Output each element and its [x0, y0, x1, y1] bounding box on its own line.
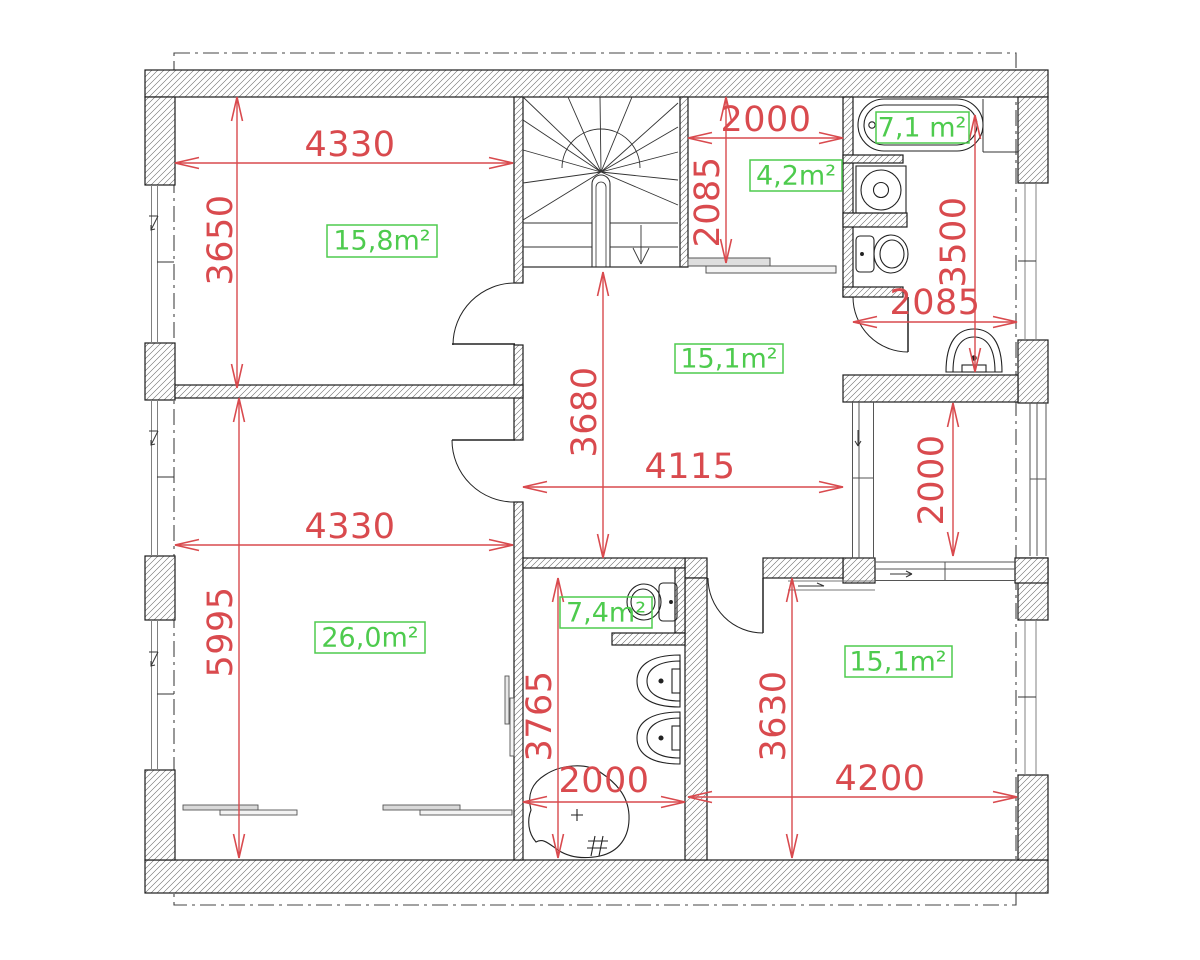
- floor-plan-canvas: 4330 3650 2000 2085 3500 2085 3680 4115 …: [0, 0, 1200, 960]
- interior-wall: [685, 558, 707, 578]
- interior-wall: [843, 97, 853, 297]
- area-label-closet: 4,2m²: [750, 160, 842, 192]
- dim-width-living: 4330: [304, 507, 395, 547]
- window: [149, 620, 174, 770]
- exterior-wall-left-pier: [145, 343, 175, 400]
- area-value: 15,8m²: [333, 226, 430, 257]
- dim-height-bedroom-top-left: 3650: [201, 194, 241, 285]
- floor-plan-drawing: 4330 3650 2000 2085 3500 2085 3680 4115 …: [0, 0, 1200, 960]
- bathroom-wall: [523, 558, 685, 568]
- balcony-corner-wall: [1015, 558, 1048, 583]
- dim-height-closet: 2085: [688, 156, 728, 247]
- exterior-wall-left-pier: [145, 556, 175, 620]
- stair-direction-arrow: [633, 225, 649, 264]
- exterior-wall-top: [145, 70, 1048, 97]
- interior-wall: [763, 558, 843, 578]
- sink: [946, 329, 1002, 372]
- balcony-glazing: [875, 562, 1015, 581]
- dim-width-bathroom-top: 2085: [889, 283, 980, 323]
- exterior-wall-left-pier: [145, 770, 175, 860]
- area-value: 7,4m²: [566, 598, 646, 629]
- window: [1018, 183, 1036, 340]
- staircase: [523, 97, 688, 267]
- bathroom-niche-wall: [843, 155, 903, 163]
- dim-width-bedroom-bottom-right: 4200: [834, 759, 925, 799]
- window: [149, 185, 174, 343]
- door-to-bedroom-bottom-right: [708, 578, 763, 633]
- door-to-living-bottom-left: [452, 440, 515, 502]
- exterior-wall-right-pier: [1018, 340, 1048, 403]
- interior-wall: [685, 578, 707, 860]
- washing-machine: [856, 166, 906, 213]
- exterior-wall-right-pier: [1018, 97, 1048, 183]
- area-value: 7,1 m²: [878, 113, 967, 144]
- dim-height-bathroom-top: 3500: [934, 196, 974, 287]
- exterior-wall-right-pier: [1018, 775, 1048, 860]
- balcony-glazing: [852, 402, 874, 558]
- area-label-living: 26,0m²: [315, 622, 425, 654]
- dim-width-closet: 2000: [720, 100, 811, 140]
- dim-height-hall: 3680: [565, 366, 605, 457]
- area-label-bathroom-top: 7,1 m²: [876, 112, 969, 144]
- wardrobe: [183, 676, 514, 815]
- area-value: 15,1m²: [680, 344, 777, 375]
- dim-height-bedroom-bottom-right: 3630: [754, 670, 794, 761]
- window: [149, 400, 174, 556]
- sink: [637, 712, 680, 764]
- area-label-hall: 15,1m²: [675, 344, 783, 375]
- balcony-glazing: [1030, 403, 1046, 556]
- bathroom-niche-wall: [843, 213, 907, 227]
- dim-height-living: 5995: [201, 586, 241, 677]
- area-value: 26,0m²: [321, 623, 418, 654]
- tub-center-mark: [571, 809, 583, 821]
- dimension-labels: 4330 3650 2000 2085 3500 2085 3680 4115 …: [201, 100, 981, 801]
- toilet-nook-wall: [612, 633, 685, 645]
- area-label-bedroom-top-left: 15,8m²: [327, 225, 437, 257]
- door-to-bedroom-top-left: [452, 283, 515, 345]
- area-label-bedroom-bottom-right: 15,1m²: [845, 646, 952, 678]
- interior-wall: [514, 97, 523, 283]
- stairwell-wall: [680, 97, 688, 267]
- dim-width-bedroom-top-left: 4330: [304, 125, 395, 165]
- niche-line: [983, 99, 1018, 152]
- area-value: 15,1m²: [849, 647, 946, 678]
- area-value: 4,2m²: [756, 161, 836, 192]
- sliding-door: [688, 258, 836, 273]
- interior-wall: [843, 375, 1018, 402]
- dim-width-bathroom-bottom: 2000: [558, 761, 649, 801]
- exterior-wall-bottom: [145, 860, 1048, 893]
- dim-height-balcony: 2000: [912, 434, 952, 525]
- interior-wall: [175, 385, 523, 398]
- exterior-wall-left-pier: [145, 97, 175, 185]
- balcony-corner-wall: [843, 558, 875, 583]
- dim-width-hall: 4115: [644, 447, 735, 487]
- sink: [637, 655, 680, 707]
- dim-height-bathroom-bottom: 3765: [520, 670, 560, 761]
- faucet-icon: [587, 836, 608, 856]
- area-label-bathroom-bottom: 7,4m²: [560, 597, 652, 629]
- window: [1018, 620, 1036, 775]
- toilet: [856, 235, 908, 273]
